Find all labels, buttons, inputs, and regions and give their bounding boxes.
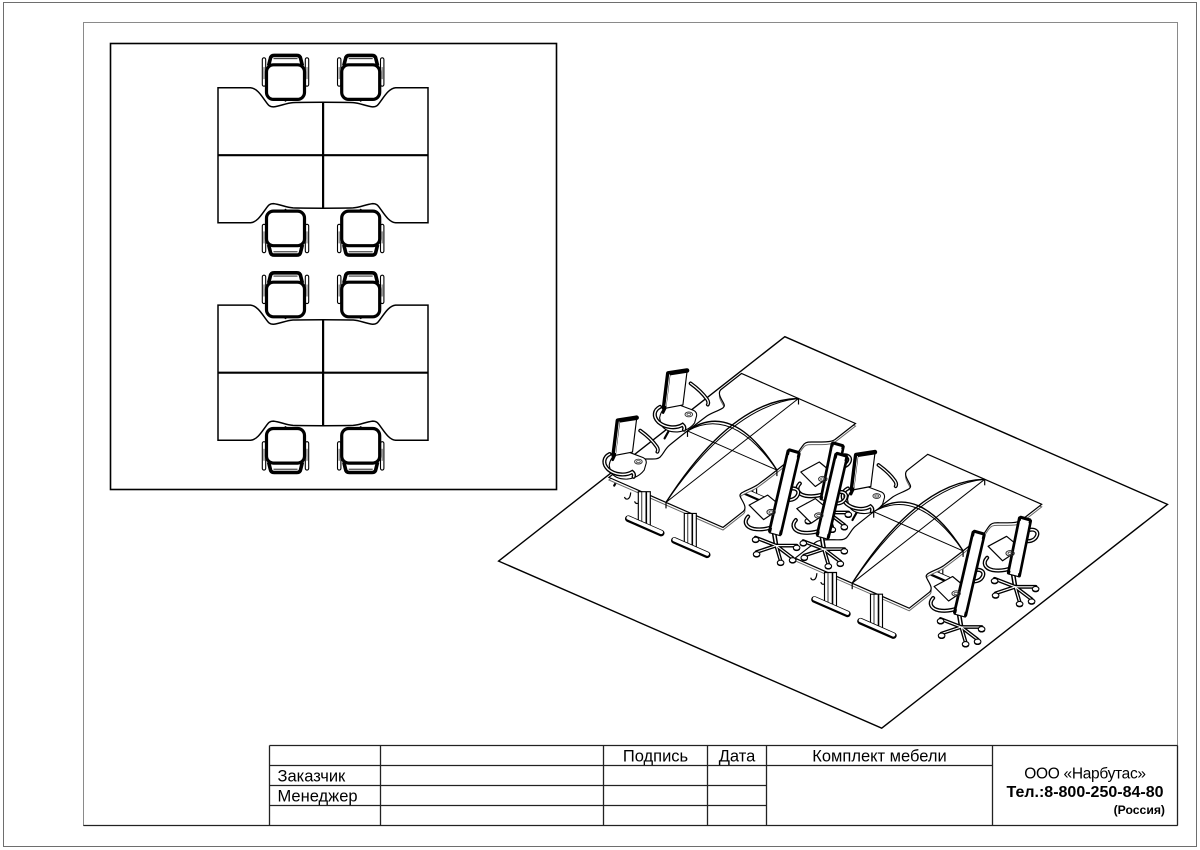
svg-text:Подпись: Подпись: [623, 748, 688, 766]
svg-text:Комплект мебели: Комплект мебели: [812, 748, 947, 766]
svg-text:Менеджер: Менеджер: [278, 788, 358, 806]
svg-text:Дата: Дата: [719, 748, 756, 766]
svg-text:ООО «Нарбутас»: ООО «Нарбутас»: [1024, 766, 1146, 783]
svg-text:(Россия): (Россия): [1114, 803, 1165, 817]
svg-text:Заказчик: Заказчик: [278, 768, 347, 786]
svg-text:Тел.:8-800-250-84-80: Тел.:8-800-250-84-80: [1006, 784, 1163, 801]
